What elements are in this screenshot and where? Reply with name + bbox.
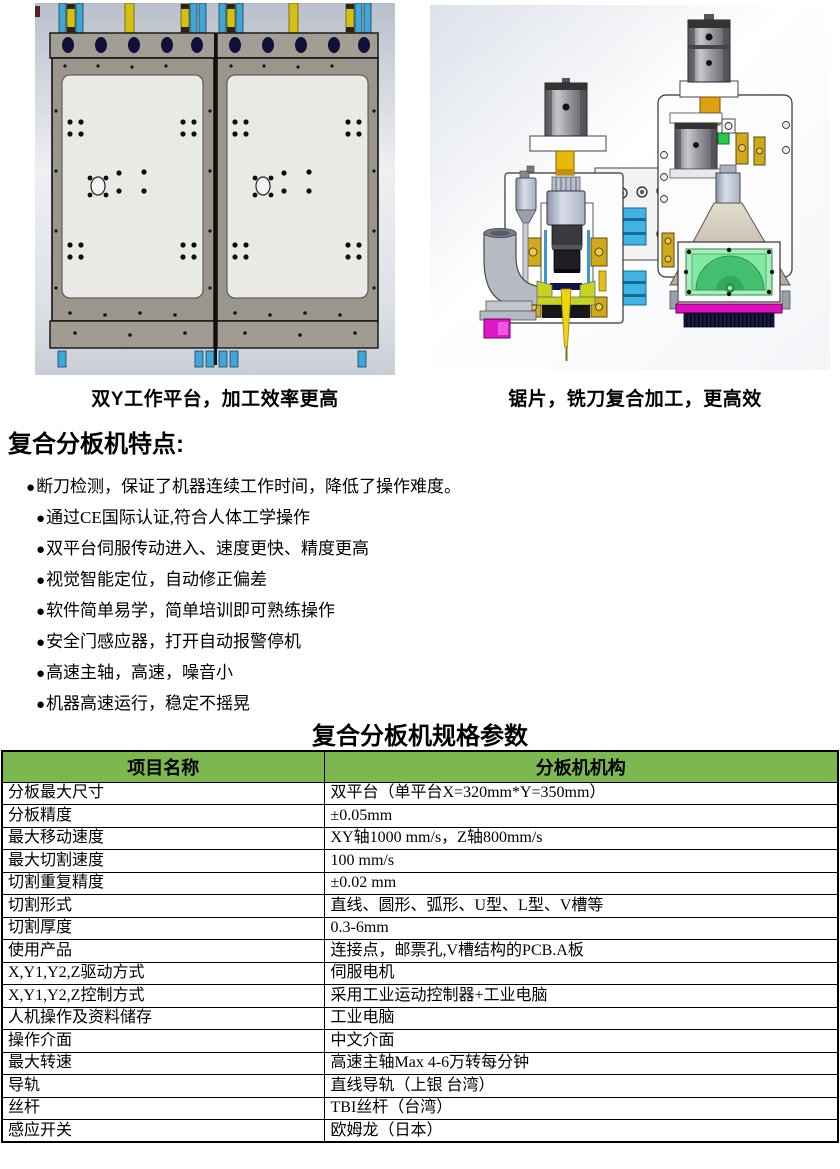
stepper-motor-icon [545,78,587,136]
table-row: 分板最大尺寸双平台（单平台X=320mm*Y=350mm） [2,782,838,805]
bullet-icon: ● [36,542,45,558]
table-row: 感应开关欧姆龙（日本） [2,1120,838,1143]
feature-item: ●双平台伺服传动进入、速度更快、精度更高 [36,534,816,565]
work-platform-modules [50,33,378,365]
table-row: 切割厚度0.3-6mm [2,917,838,940]
saw-blade-cover [678,242,780,302]
feature-item: ●视觉智能定位，自动修正偏差 [36,565,816,596]
saw-mill-combo-image [430,5,830,370]
table-row: X,Y1,Y2,Z驱动方式伺服电机 [2,962,838,985]
table-row: 分板精度±0.05mm [2,805,838,828]
table-row: 丝杆TBI丝杆（台湾） [2,1097,838,1120]
specs-table: 项目名称 分板机机构 分板最大尺寸双平台（单平台X=320mm*Y=350mm）… [1,750,839,1143]
right-image-caption: 锯片，铣刀复合加工，更高效 [445,384,825,408]
secondary-motor-icon [670,113,722,178]
features-heading: 复合分板机特点: [8,424,184,459]
bullet-icon: ● [26,480,35,496]
brush-strip [684,313,774,327]
table-row: 切割形式直线、圆形、弧形、U型、L型、V槽等 [2,895,838,918]
table-row: 操作介面中文介面 [2,1030,838,1053]
feature-item: ●软件简单易学，简单培训即可熟练操作 [36,596,816,627]
table-row: 最大移动速度XY轴1000 mm/s，Z轴800mm/s [2,827,838,850]
green-indicator [718,133,729,144]
feature-item: ●安全门感应器，打开自动报警停机 [36,627,816,658]
stepper-motor-icon [688,14,730,82]
table-row: 人机操作及资料储存工业电脑 [2,1007,838,1030]
table-row: 导轨直线导轨（上银 台湾） [2,1075,838,1098]
product-page: 双Y工作平台，加工效率更高 锯片，铣刀复合加工，更高效 复合分板机特点: ●断刀… [0,0,840,1169]
bullet-icon: ● [36,697,45,713]
bullet-icon: ● [36,635,45,651]
table-row: 最大转速高速主轴Max 4-6万转每分钟 [2,1052,838,1075]
specs-header-item: 项目名称 [2,751,324,782]
feature-item: ●断刀检测，保证了机器连续工作时间，降低了操作难度。 [26,472,816,503]
bullet-icon: ● [36,511,45,527]
dual-y-platform-image [35,3,395,375]
table-row: 最大切割速度100 mm/s [2,850,838,873]
table-row: 使用产品连接点，邮票孔,V槽结构的PCB.A板 [2,940,838,963]
specs-header-row: 项目名称 分板机机构 [2,751,838,782]
feature-item: ●高速主轴，高速，噪音小 [36,658,816,689]
table-row: 切割重复精度±0.02 mm [2,872,838,895]
specs-table-title: 复合分板机规格参数 [0,716,840,751]
left-image-caption: 双Y工作平台，加工效率更高 [35,384,395,408]
bullet-icon: ● [36,604,45,620]
feature-item: ●通过CE国际认证,符合人体工学操作 [36,503,816,534]
bullet-icon: ● [36,666,45,682]
magenta-strip [676,304,782,313]
specs-header-mechanism: 分板机机构 [324,751,838,782]
magenta-block [484,319,510,338]
bullet-icon: ● [36,573,45,589]
features-list: ●断刀检测，保证了机器连续工作时间，降低了操作难度。 ●通过CE国际认证,符合人… [26,472,816,720]
table-row: X,Y1,Y2,Z控制方式采用工业运动控制器+工业电脑 [2,985,838,1008]
